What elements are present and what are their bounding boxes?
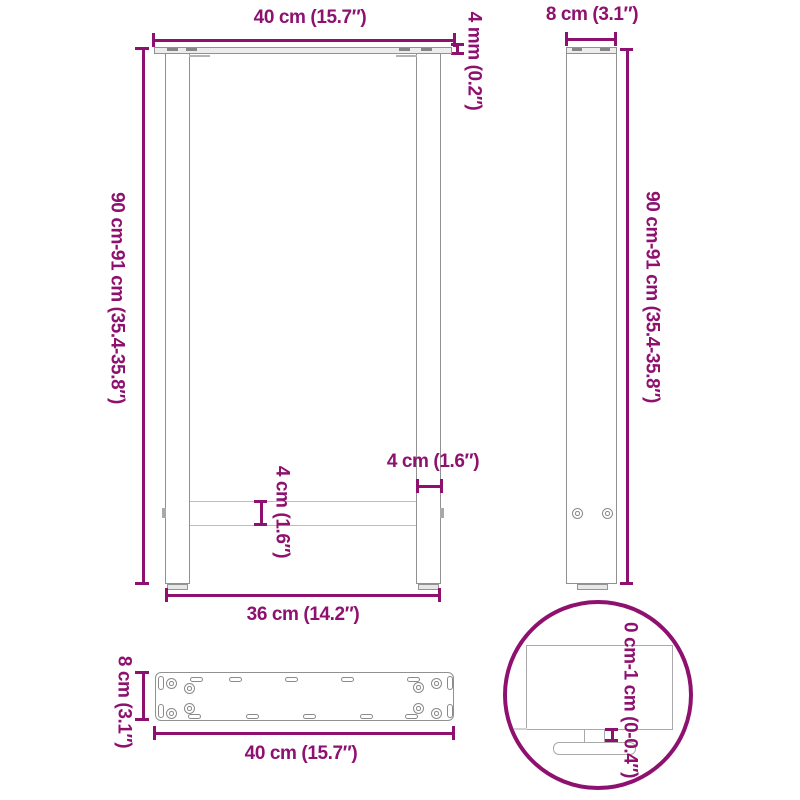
plate-screw-hole	[413, 703, 424, 714]
detail-ground-line	[507, 728, 527, 730]
foot-adjust-tick-top	[605, 728, 618, 731]
plate-screw-hole	[166, 678, 177, 689]
plate-screw-hole	[413, 682, 424, 693]
plate-slot	[188, 714, 201, 719]
plate-screw-hole	[184, 703, 195, 714]
plate-end-slot	[158, 704, 164, 718]
plate-slot	[405, 714, 418, 719]
plate-depth-tick-top	[135, 671, 149, 674]
plate-slot	[190, 677, 203, 682]
plate-depth-tick-bottom	[135, 718, 149, 721]
plate-width-label: 40 cm (15.7″)	[245, 744, 358, 763]
plate-end-slot	[447, 704, 453, 718]
plate-width-dimension-line	[155, 732, 455, 735]
plate-screw-hole	[184, 683, 195, 694]
dimension-diagram: 40 cm (15.7″) 4 mm (0.2″) 90 cm-91 cm (3…	[0, 0, 800, 800]
plate-slot	[360, 714, 373, 719]
plate-screw-hole	[431, 708, 442, 719]
detail-leg-bottom	[526, 645, 673, 730]
plate-slot	[229, 677, 242, 682]
plate-depth-label: 8 cm (3.1″)	[115, 656, 134, 748]
plate-slot	[285, 677, 298, 682]
plate-screw-hole	[166, 708, 177, 719]
plate-depth-dimension-line	[142, 673, 145, 721]
plate-end-slot	[158, 676, 164, 690]
plate-slot	[407, 677, 420, 682]
plate-width-tick-right	[452, 726, 455, 740]
detail-view-circle: 0 cm-1 cm (0-0.4″)	[503, 600, 693, 790]
detail-foot-stem	[584, 729, 605, 743]
plate-end-slot	[447, 676, 453, 690]
plate-slot	[341, 677, 354, 682]
plate-width-tick-left	[153, 726, 156, 740]
plate-screw-hole	[431, 678, 442, 689]
foot-adjust-label: 0 cm-1 cm (0-0.4″)	[621, 622, 640, 778]
plate-slot	[303, 714, 316, 719]
plate-slot	[246, 714, 259, 719]
foot-adjust-tick-bottom	[605, 739, 618, 742]
